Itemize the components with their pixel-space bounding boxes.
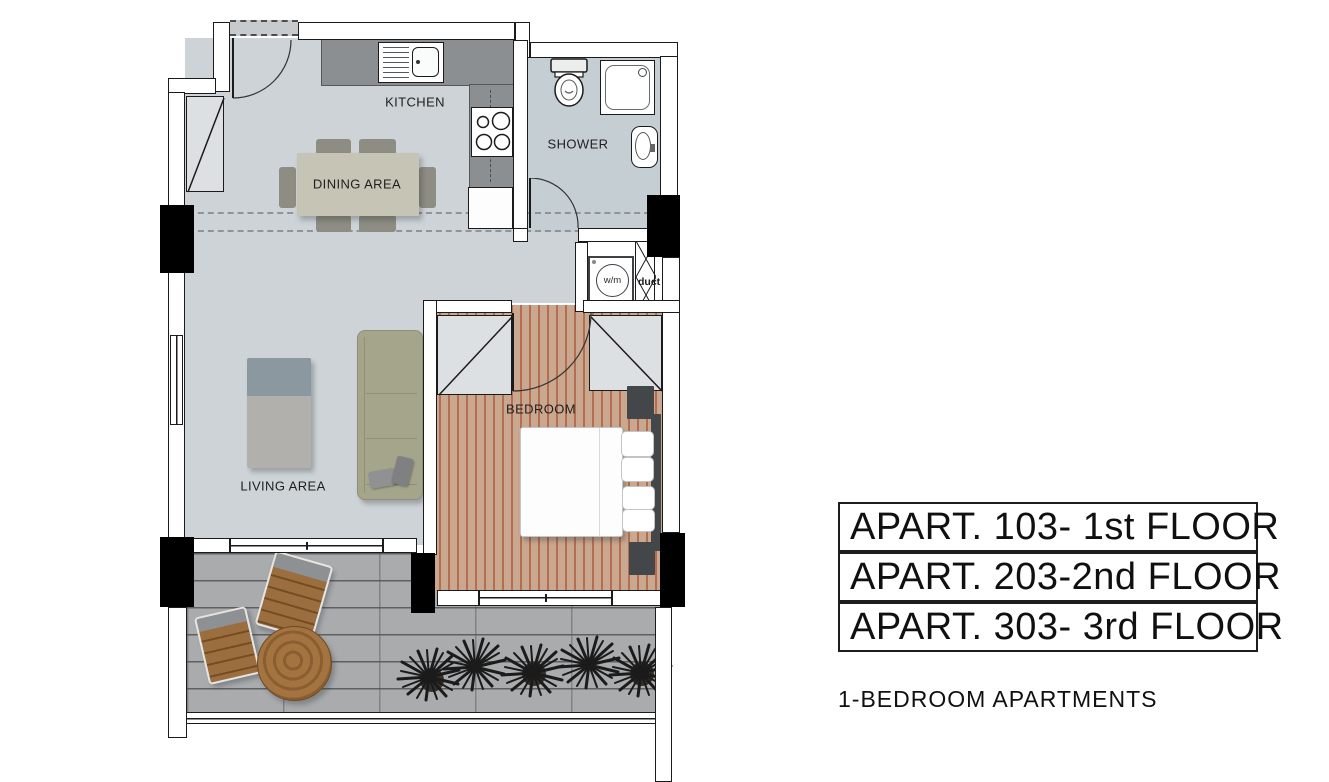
wardrobe xyxy=(589,315,662,391)
wardrobe xyxy=(437,315,512,395)
window xyxy=(170,335,183,425)
entry-closet xyxy=(186,96,224,192)
duct-label: duct xyxy=(638,276,660,288)
shower-door xyxy=(525,178,583,232)
dining-chair xyxy=(279,167,296,208)
nightstand xyxy=(627,386,654,419)
beam-dashed-line xyxy=(188,212,660,214)
wall xyxy=(437,590,479,606)
apartment-label: APART. 203-2nd FLOOR xyxy=(840,554,1256,600)
wall xyxy=(612,590,662,606)
hallway-floor xyxy=(513,232,583,303)
wall xyxy=(530,42,678,58)
wall xyxy=(662,257,680,533)
wall xyxy=(583,300,680,313)
bed-pillow xyxy=(621,457,654,482)
sink-drainboard xyxy=(383,47,409,78)
kitchen-sink-icon xyxy=(378,42,444,83)
kitchen-unit xyxy=(468,187,513,229)
wall xyxy=(423,300,437,555)
dining-chair xyxy=(419,167,436,208)
wall xyxy=(168,92,185,545)
sink-bowl xyxy=(412,47,439,77)
room-label-bedroom: BEDROOM xyxy=(506,402,576,417)
terrace-table xyxy=(257,626,332,701)
window xyxy=(479,590,612,606)
entry-threshold xyxy=(230,20,298,36)
structural-column xyxy=(160,537,194,607)
floor-plan-sheet: w/m duct xyxy=(0,0,1329,782)
structural-column xyxy=(660,533,685,607)
apartments-caption: 1-BEDROOM APARTMENTS xyxy=(838,686,1157,713)
shower-tray-icon xyxy=(600,60,655,115)
stove-hob-icon xyxy=(471,107,513,157)
dining-chair xyxy=(316,215,351,232)
apartment-label-box: APART. 103- 1st FLOOR xyxy=(838,502,1258,552)
apartment-label: APART. 303- 3rd FLOOR xyxy=(840,604,1256,650)
tv-cabinet xyxy=(247,358,311,468)
balcony-railing xyxy=(187,712,655,724)
apartment-label-box: APART. 203-2nd FLOOR xyxy=(838,552,1258,602)
wall xyxy=(660,56,678,197)
entry-door xyxy=(230,38,296,102)
bed-pillow xyxy=(622,509,655,532)
wall xyxy=(655,607,672,782)
bed-pillow xyxy=(622,486,655,510)
wall xyxy=(383,538,417,553)
bedroom-door xyxy=(508,310,596,394)
structural-column xyxy=(411,553,435,613)
bed xyxy=(520,427,623,537)
washing-machine-icon: w/m xyxy=(588,256,634,303)
bed-pillow xyxy=(621,431,654,457)
structural-column xyxy=(647,195,680,257)
apartment-label: APART. 103- 1st FLOOR xyxy=(840,504,1256,550)
room-label-kitchen: KITCHEN xyxy=(385,95,445,110)
washing-machine-label: w/m xyxy=(604,275,621,286)
room-label-living: LIVING AREA xyxy=(240,479,325,494)
room-label-dining: DINING AREA xyxy=(313,177,401,192)
washbasin-icon xyxy=(631,126,658,168)
window xyxy=(230,538,383,553)
toilet-icon xyxy=(546,57,592,107)
dining-chair xyxy=(359,215,396,232)
wall xyxy=(168,607,187,738)
wall xyxy=(298,22,515,40)
apartment-label-box: APART. 303- 3rd FLOOR xyxy=(838,602,1258,652)
structural-column xyxy=(160,205,194,273)
room-label-shower: SHOWER xyxy=(548,137,609,152)
